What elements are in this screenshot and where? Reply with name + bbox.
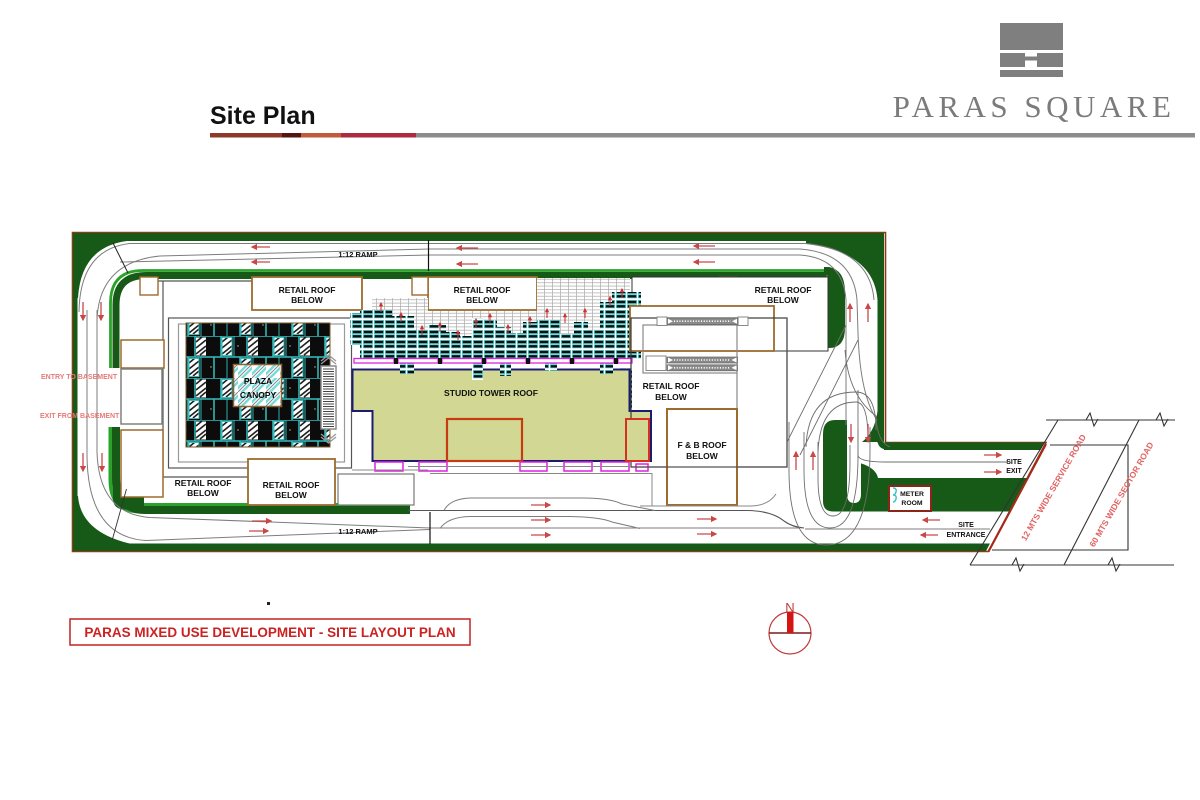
svg-text:SITE: SITE xyxy=(1006,459,1022,466)
svg-text:BELOW: BELOW xyxy=(466,295,499,305)
svg-text:CANOPY: CANOPY xyxy=(240,390,277,400)
svg-text:EXIT: EXIT xyxy=(1006,468,1022,475)
svg-text:RETAIL ROOF: RETAIL ROOF xyxy=(454,285,511,295)
svg-text:METER: METER xyxy=(900,491,924,498)
svg-text:N: N xyxy=(785,600,794,615)
svg-text:RETAIL ROOF: RETAIL ROOF xyxy=(263,480,320,490)
svg-text:BELOW: BELOW xyxy=(686,451,719,461)
svg-text:RETAIL ROOF: RETAIL ROOF xyxy=(643,381,700,391)
svg-text:EXIT FROM BASEMENT: EXIT FROM BASEMENT xyxy=(40,413,120,420)
svg-text:RETAIL ROOF: RETAIL ROOF xyxy=(279,285,336,295)
svg-text:1:12 RAMP: 1:12 RAMP xyxy=(338,250,377,259)
svg-text:1:12 RAMP: 1:12 RAMP xyxy=(338,527,377,536)
svg-text:PLAZA: PLAZA xyxy=(244,376,272,386)
svg-text:ENTRANCE: ENTRANCE xyxy=(947,532,986,539)
svg-text:F & B ROOF: F & B ROOF xyxy=(677,440,726,450)
svg-text:BELOW: BELOW xyxy=(767,295,800,305)
svg-text:BELOW: BELOW xyxy=(655,392,688,402)
svg-text:STUDIO TOWER ROOF: STUDIO TOWER ROOF xyxy=(444,388,538,398)
svg-text:PARAS SQUARE: PARAS SQUARE xyxy=(893,89,1176,124)
svg-text:RETAIL ROOF: RETAIL ROOF xyxy=(175,478,232,488)
svg-text:PARAS MIXED USE DEVELOPMENT -: PARAS MIXED USE DEVELOPMENT - SITE LAYOU… xyxy=(84,625,455,640)
svg-text:RETAIL ROOF: RETAIL ROOF xyxy=(755,285,812,295)
svg-text:ENTRY TO BASEMENT: ENTRY TO BASEMENT xyxy=(41,374,118,381)
svg-text:BELOW: BELOW xyxy=(187,488,220,498)
svg-text:BELOW: BELOW xyxy=(291,295,324,305)
svg-text:BELOW: BELOW xyxy=(275,490,308,500)
svg-text:Site Plan: Site Plan xyxy=(210,102,316,130)
svg-text:SITE: SITE xyxy=(958,522,974,529)
svg-text:ROOM: ROOM xyxy=(901,500,922,507)
